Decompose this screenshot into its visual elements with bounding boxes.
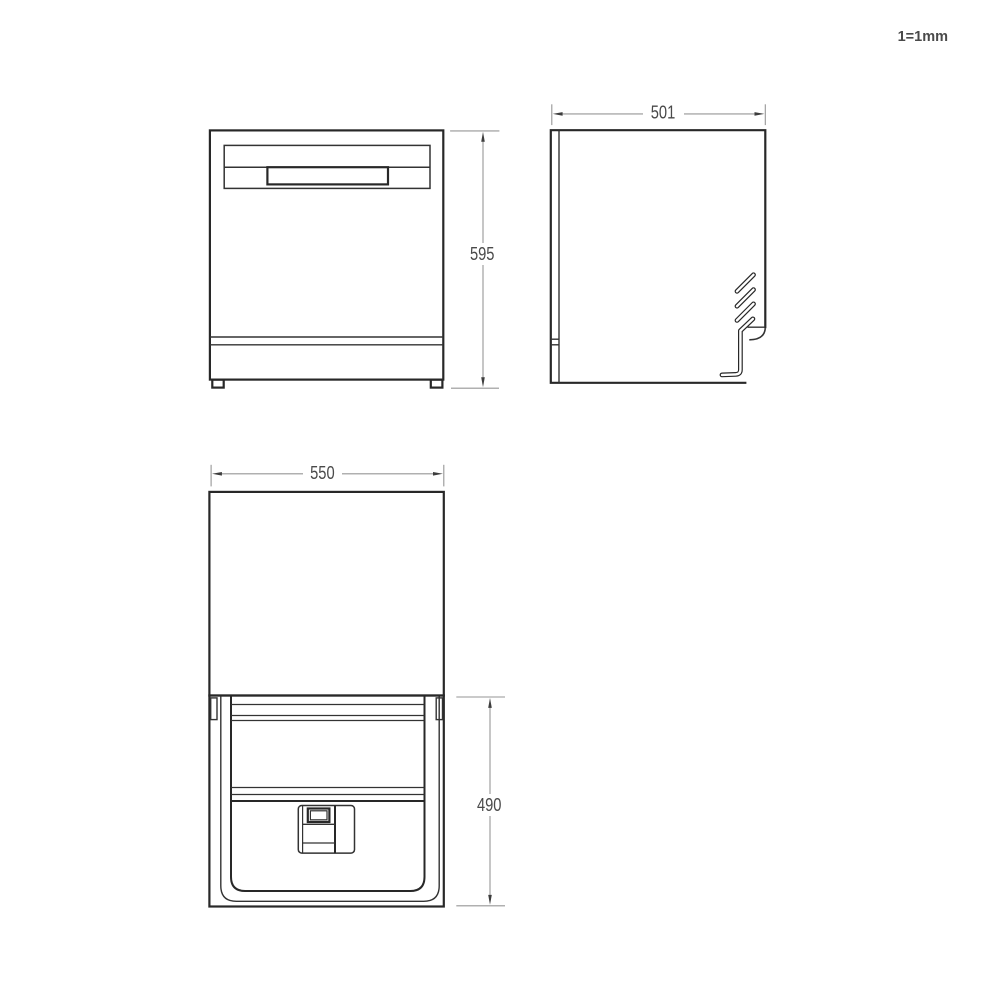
svg-text:490: 490	[477, 795, 502, 815]
svg-text:1=1mm: 1=1mm	[898, 29, 948, 45]
svg-text:550: 550	[310, 463, 335, 483]
svg-text:595: 595	[470, 244, 495, 264]
svg-text:501: 501	[651, 103, 676, 123]
